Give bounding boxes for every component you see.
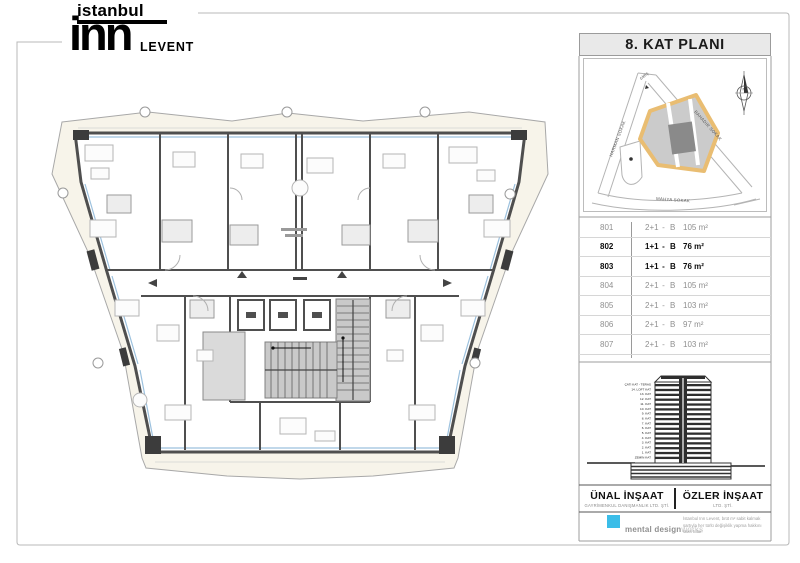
- apt-area: 105 m²: [683, 223, 771, 232]
- podium: [587, 463, 765, 479]
- table-row: 806 2+1 - B 97 m²: [579, 316, 771, 336]
- apt-dash: -: [657, 242, 670, 251]
- apt-no: 804: [579, 281, 631, 290]
- table-row: 802 1+1 - B 76 m²: [579, 238, 771, 258]
- apt-no: 803: [579, 262, 631, 271]
- svg-text:14. LOFT KAT: 14. LOFT KAT: [631, 387, 651, 391]
- table-row: 803 1+1 - B 76 m²: [579, 257, 771, 277]
- apt-plan: 1+1: [631, 262, 657, 271]
- apt-area: 103 m²: [683, 340, 771, 349]
- stair-center: [265, 342, 337, 398]
- svg-text:7. KAT: 7. KAT: [642, 421, 651, 425]
- svg-text:ÇATI KAT - TERAS: ÇATI KAT - TERAS: [625, 383, 651, 387]
- apt-no: 802: [579, 242, 631, 251]
- north-arrow-icon: N: [735, 71, 753, 115]
- table-row: 801 2+1 - B 105 m²: [579, 218, 771, 238]
- svg-text:2. KAT: 2. KAT: [642, 446, 651, 450]
- logo-inn-text: inn: [69, 10, 130, 57]
- svg-text:ZEMİN KAT: ZEMİN KAT: [635, 454, 651, 459]
- svg-text:GİRİŞ: GİRİŞ: [639, 70, 650, 80]
- apt-dash: -: [657, 281, 670, 290]
- company-left: ÜNAL İNŞAAT GAYRİMENKUL DANIŞMANLIK LTD.…: [579, 485, 675, 512]
- apt-dash: -: [657, 301, 670, 310]
- site-map: GİRİŞ HARMAN SOKAK BAHADIR SOKAK MAHYA S…: [583, 58, 767, 212]
- apt-no: 807: [579, 340, 631, 349]
- site-map-drawing: GİRİŞ HARMAN SOKAK BAHADIR SOKAK MAHYA S…: [584, 59, 766, 211]
- building-footprint: [640, 95, 718, 171]
- credits-bar: mental designworks İstanbul Inn Levent, …: [579, 512, 771, 541]
- apt-type: B: [670, 242, 683, 251]
- apt-type: B: [670, 301, 683, 310]
- svg-text:MAHYA SOKAK: MAHYA SOKAK: [656, 196, 690, 203]
- svg-text:5. KAT: 5. KAT: [642, 431, 651, 435]
- apt-area: 103 m²: [683, 301, 771, 310]
- neighbor-dot: [629, 157, 633, 161]
- disclaimer-text: İstanbul Inn Levent, brüt m² sabit kalma…: [683, 516, 765, 536]
- company-name: ÖZLER İNŞAAT: [683, 490, 763, 502]
- apt-dash: -: [657, 320, 670, 329]
- apt-no: 806: [579, 320, 631, 329]
- tower: [655, 376, 711, 463]
- brand-name: mental design: [625, 525, 681, 534]
- building-elevation: ÇATI KAT - TERAS 14. LOFT KAT 13. KAT 12…: [579, 368, 771, 482]
- apt-type: B: [670, 281, 683, 290]
- apt-type: B: [670, 223, 683, 232]
- floor-labels: ÇATI KAT - TERAS 14. LOFT KAT 13. KAT 12…: [625, 383, 652, 460]
- apt-area: 105 m²: [683, 281, 771, 290]
- apt-plan: 2+1: [631, 301, 657, 310]
- apt-plan: 2+1: [631, 340, 657, 349]
- svg-text:N: N: [743, 87, 746, 92]
- apt-area: 76 m²: [683, 242, 771, 251]
- apt-plan: 2+1: [631, 320, 657, 329]
- apt-dash: -: [657, 223, 670, 232]
- company-divider: [674, 488, 676, 509]
- apt-plan: 2+1: [631, 281, 657, 290]
- elevation-drawing: ÇATI KAT - TERAS 14. LOFT KAT 13. KAT 12…: [579, 368, 771, 482]
- svg-text:12. KAT: 12. KAT: [640, 397, 651, 401]
- company-subtitle: LTD. ŞTİ.: [713, 503, 732, 508]
- apt-plan: 2+1: [631, 223, 657, 232]
- svg-text:3. KAT: 3. KAT: [642, 441, 651, 445]
- table-row: 805 2+1 - B 103 m²: [579, 296, 771, 316]
- apt-no: 801: [579, 223, 631, 232]
- apt-dash: -: [657, 340, 670, 349]
- apt-area: 76 m²: [683, 262, 771, 271]
- svg-text:4. KAT: 4. KAT: [642, 436, 651, 440]
- company-name: ÜNAL İNŞAAT: [590, 490, 664, 502]
- table-row: 807 2+1 - B 103 m²: [579, 335, 771, 355]
- company-subtitle: GAYRİMENKUL DANIŞMANLIK LTD. ŞTİ.: [585, 503, 670, 508]
- mental-design-logo-icon: [607, 515, 620, 528]
- apt-type: B: [670, 262, 683, 271]
- svg-text:8. KAT: 8. KAT: [642, 416, 651, 420]
- svg-text:11. KAT: 11. KAT: [640, 402, 651, 406]
- svg-text:13. KAT: 13. KAT: [640, 392, 651, 396]
- neighbor-building: [620, 141, 642, 184]
- svg-text:9. KAT: 9. KAT: [642, 412, 651, 416]
- apartment-table: 801 2+1 - B 105 m² 802 1+1 - B 76 m² 803…: [579, 218, 771, 362]
- brand-logo: istanbul inn LEVENT: [64, 0, 198, 58]
- svg-text:1. KAT: 1. KAT: [642, 450, 651, 454]
- sheet-title: 8. KAT PLANI: [579, 33, 771, 56]
- apt-area: 97 m²: [683, 320, 771, 329]
- svg-text:10. KAT: 10. KAT: [640, 407, 651, 411]
- stair-right: [336, 299, 370, 401]
- building-core: [668, 121, 696, 154]
- floor-plan-drawing: [45, 100, 555, 500]
- companies-bar: ÜNAL İNŞAAT GAYRİMENKUL DANIŞMANLIK LTD.…: [579, 485, 771, 512]
- floor-plan-sheet: istanbul inn LEVENT: [0, 0, 800, 563]
- company-right: ÖZLER İNŞAAT LTD. ŞTİ.: [675, 485, 771, 512]
- core-lobby: [203, 332, 245, 400]
- apt-plan: 1+1: [631, 242, 657, 251]
- svg-text:6. KAT: 6. KAT: [642, 426, 651, 430]
- table-row: 804 2+1 - B 105 m²: [579, 277, 771, 297]
- apt-dash: -: [657, 262, 670, 271]
- apt-type: B: [670, 320, 683, 329]
- apt-no: 805: [579, 301, 631, 310]
- logo-levent-text: LEVENT: [140, 40, 194, 54]
- apt-type: B: [670, 340, 683, 349]
